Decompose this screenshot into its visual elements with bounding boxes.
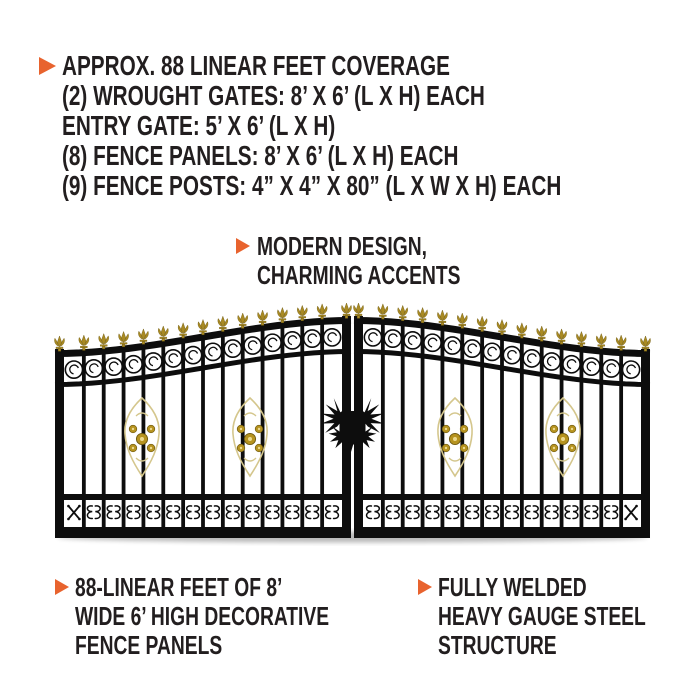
- feature-line: ENTRY GATE: 5’ X 6’ (L X H): [62, 111, 561, 141]
- bottom-note-line: FULLY WELDED: [438, 573, 646, 602]
- bullet-triangle-icon: [236, 238, 250, 254]
- feature-line: (8) FENCE PANELS: 8’ X 6’ (L X H) EACH: [62, 141, 561, 171]
- bottom-note-line: STRUCTURE: [438, 631, 646, 660]
- bottom-note-line: 88-LINEAR FEET OF 8’: [75, 573, 329, 602]
- feature-list: APPROX. 88 LINEAR FEET COVERAGE (2) WROU…: [62, 51, 561, 201]
- design-note-line: CHARMING ACCENTS: [257, 261, 460, 290]
- bullet-triangle-icon: [55, 579, 69, 595]
- bottom-note-line: WIDE 6’ HIGH DECORATIVE: [75, 602, 329, 631]
- bullet-triangle-icon: [418, 579, 432, 595]
- product-infographic: APPROX. 88 LINEAR FEET COVERAGE (2) WROU…: [0, 0, 700, 700]
- bottom-note-right: FULLY WELDED HEAVY GAUGE STEEL STRUCTURE: [438, 573, 646, 660]
- design-note: MODERN DESIGN, CHARMING ACCENTS: [257, 232, 460, 290]
- bottom-note-line: FENCE PANELS: [75, 631, 329, 660]
- bottom-note-left: 88-LINEAR FEET OF 8’ WIDE 6’ HIGH DECORA…: [75, 573, 329, 660]
- feature-line: (2) WROUGHT GATES: 8’ X 6’ (L X H) EACH: [62, 81, 561, 111]
- design-note-line: MODERN DESIGN,: [257, 232, 460, 261]
- feature-line: APPROX. 88 LINEAR FEET COVERAGE: [62, 51, 561, 81]
- bottom-note-line: HEAVY GAUGE STEEL: [438, 602, 646, 631]
- bullet-triangle-icon: [39, 57, 56, 75]
- feature-line: (9) FENCE POSTS: 4” X 4” X 80” (L X W X …: [62, 171, 561, 201]
